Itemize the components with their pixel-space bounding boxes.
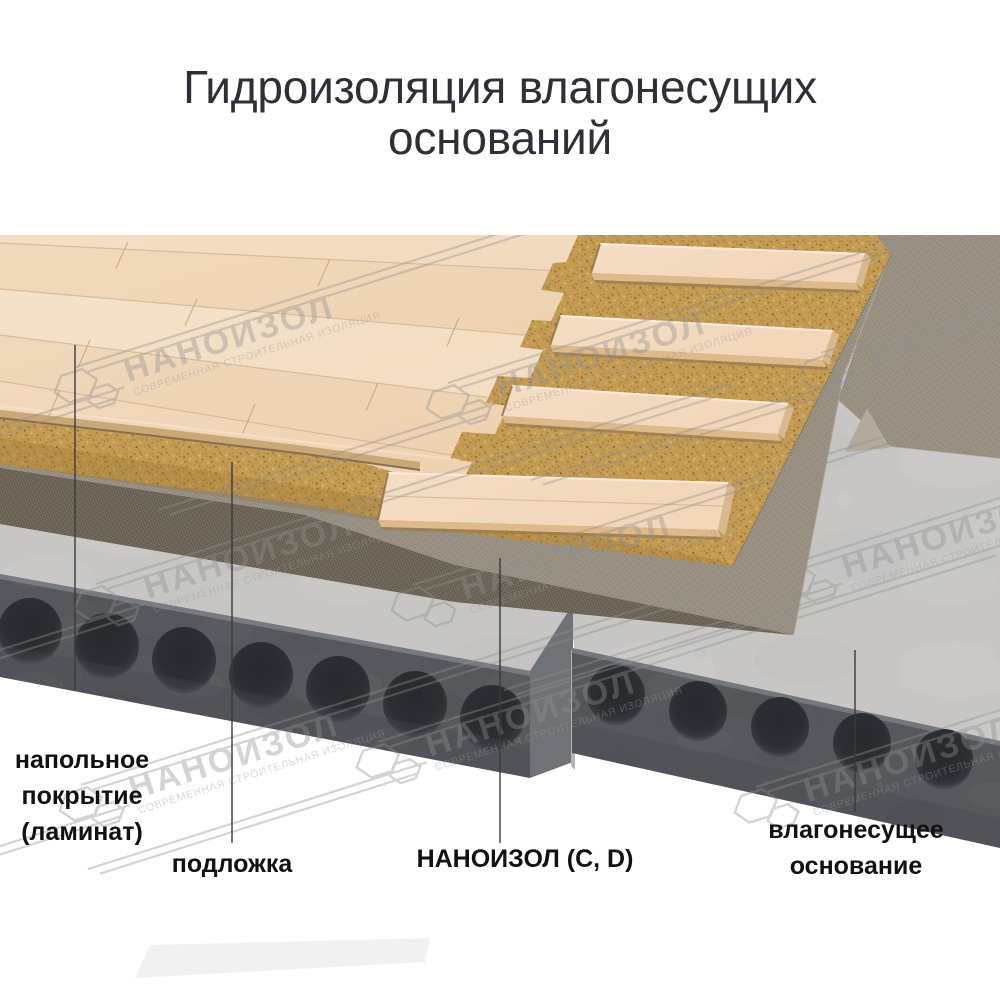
svg-text:покрытие: покрытие <box>21 782 142 810</box>
svg-text:НАНОИЗОЛ (C, D): НАНОИЗОЛ (C, D) <box>417 845 634 873</box>
svg-text:основание: основание <box>790 852 923 880</box>
svg-text:напольное: напольное <box>15 746 149 774</box>
svg-text:влагонесущее: влагонесущее <box>768 816 944 844</box>
svg-text:подложка: подложка <box>172 850 294 878</box>
svg-text:(ламинат): (ламинат) <box>21 818 143 846</box>
